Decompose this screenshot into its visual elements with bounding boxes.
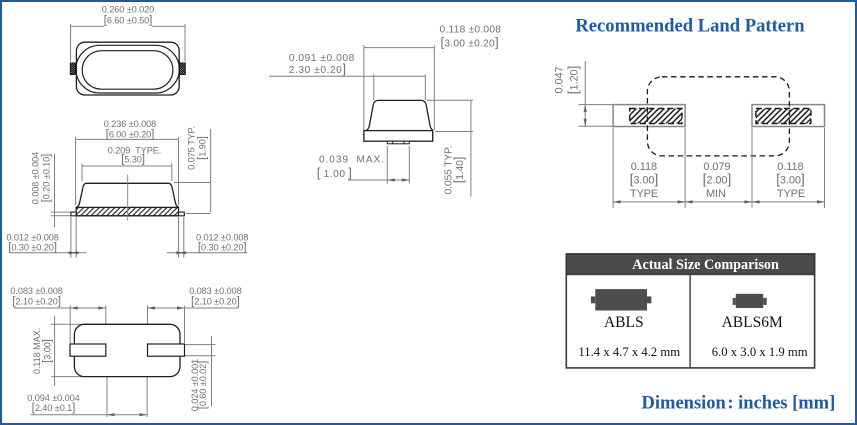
svg-text:0.118: 0.118 (777, 161, 803, 173)
svg-text:[2.10 ±0.20]: [2.10 ±0.20] (12, 294, 61, 308)
svg-text:[6.00 ±0.20]: [6.00 ±0.20] (106, 127, 155, 141)
svg-text:6.0 x 3.0 x 1.9 mm: 6.0 x 3.0 x 1.9 mm (712, 345, 808, 359)
svg-text:[3.00]: [3.00] (40, 339, 54, 363)
svg-text:0.118: 0.118 (631, 161, 657, 173)
svg-text:[0.20 ±0.10]: [0.20 ±0.10] (39, 154, 53, 203)
svg-text:TYPE: TYPE (630, 188, 658, 200)
svg-text:0.083 ±0.008: 0.083 ±0.008 (10, 286, 62, 296)
svg-text:0.079: 0.079 (703, 161, 730, 173)
svg-text:[5.30]: [5.30] (121, 151, 145, 165)
svg-text:0.055 TYP.: 0.055 TYP. (444, 146, 455, 194)
svg-text:Actual Size Comparison: Actual Size Comparison (632, 257, 779, 273)
svg-text:0.260 ±0.020: 0.260 ±0.020 (102, 5, 154, 15)
svg-text:Dimension : inches [mm]: Dimension : inches [mm] (642, 394, 836, 414)
svg-text:[6.60 ±0.50]: [6.60 ±0.50] (104, 12, 153, 26)
svg-text:[2.40 ±0.1]: [2.40 ±0.1] (32, 400, 76, 414)
svg-text:ABLS6M: ABLS6M (722, 314, 783, 331)
svg-text:0.236 ±0.008: 0.236 ±0.008 (104, 119, 156, 129)
svg-text:ABLS: ABLS (604, 314, 644, 331)
svg-text:0.083 ±0.008: 0.083 ±0.008 (189, 286, 241, 296)
svg-text:0.118 ±0.008: 0.118 ±0.008 (440, 24, 502, 35)
svg-text:0.012 ±0.008: 0.012 ±0.008 (6, 233, 58, 243)
svg-text:0.012 ±0.008: 0.012 ±0.008 (196, 233, 248, 243)
svg-text:0.039 MAX.: 0.039 MAX. (319, 154, 385, 165)
svg-text:Recommended Land Pattern: Recommended Land Pattern (575, 15, 805, 36)
svg-text:[0.30 ±0.20]: [0.30 ±0.20] (198, 240, 247, 254)
svg-text:0.047: 0.047 (553, 66, 565, 93)
svg-text:TYPE: TYPE (777, 188, 805, 200)
svg-text:0.008 ±0.004: 0.008 ±0.004 (31, 152, 41, 204)
svg-text:[2.10 ±0.20]: [2.10 ±0.20] (191, 294, 240, 308)
svg-text:11.4 x 4.7 x 4.2 mm: 11.4 x 4.7 x 4.2 mm (578, 345, 680, 359)
svg-text:MIN: MIN (706, 188, 726, 200)
svg-text:0.075 TYP.: 0.075 TYP. (187, 126, 197, 170)
svg-text:[0.60 ±0.02]: [0.60 ±0.02] (195, 361, 209, 410)
svg-text:0.118 MAX.: 0.118 MAX. (32, 328, 42, 374)
svg-text:[0.30 ±0.20]: [0.30 ±0.20] (8, 240, 57, 254)
svg-text:[1.90]: [1.90] (195, 136, 209, 160)
